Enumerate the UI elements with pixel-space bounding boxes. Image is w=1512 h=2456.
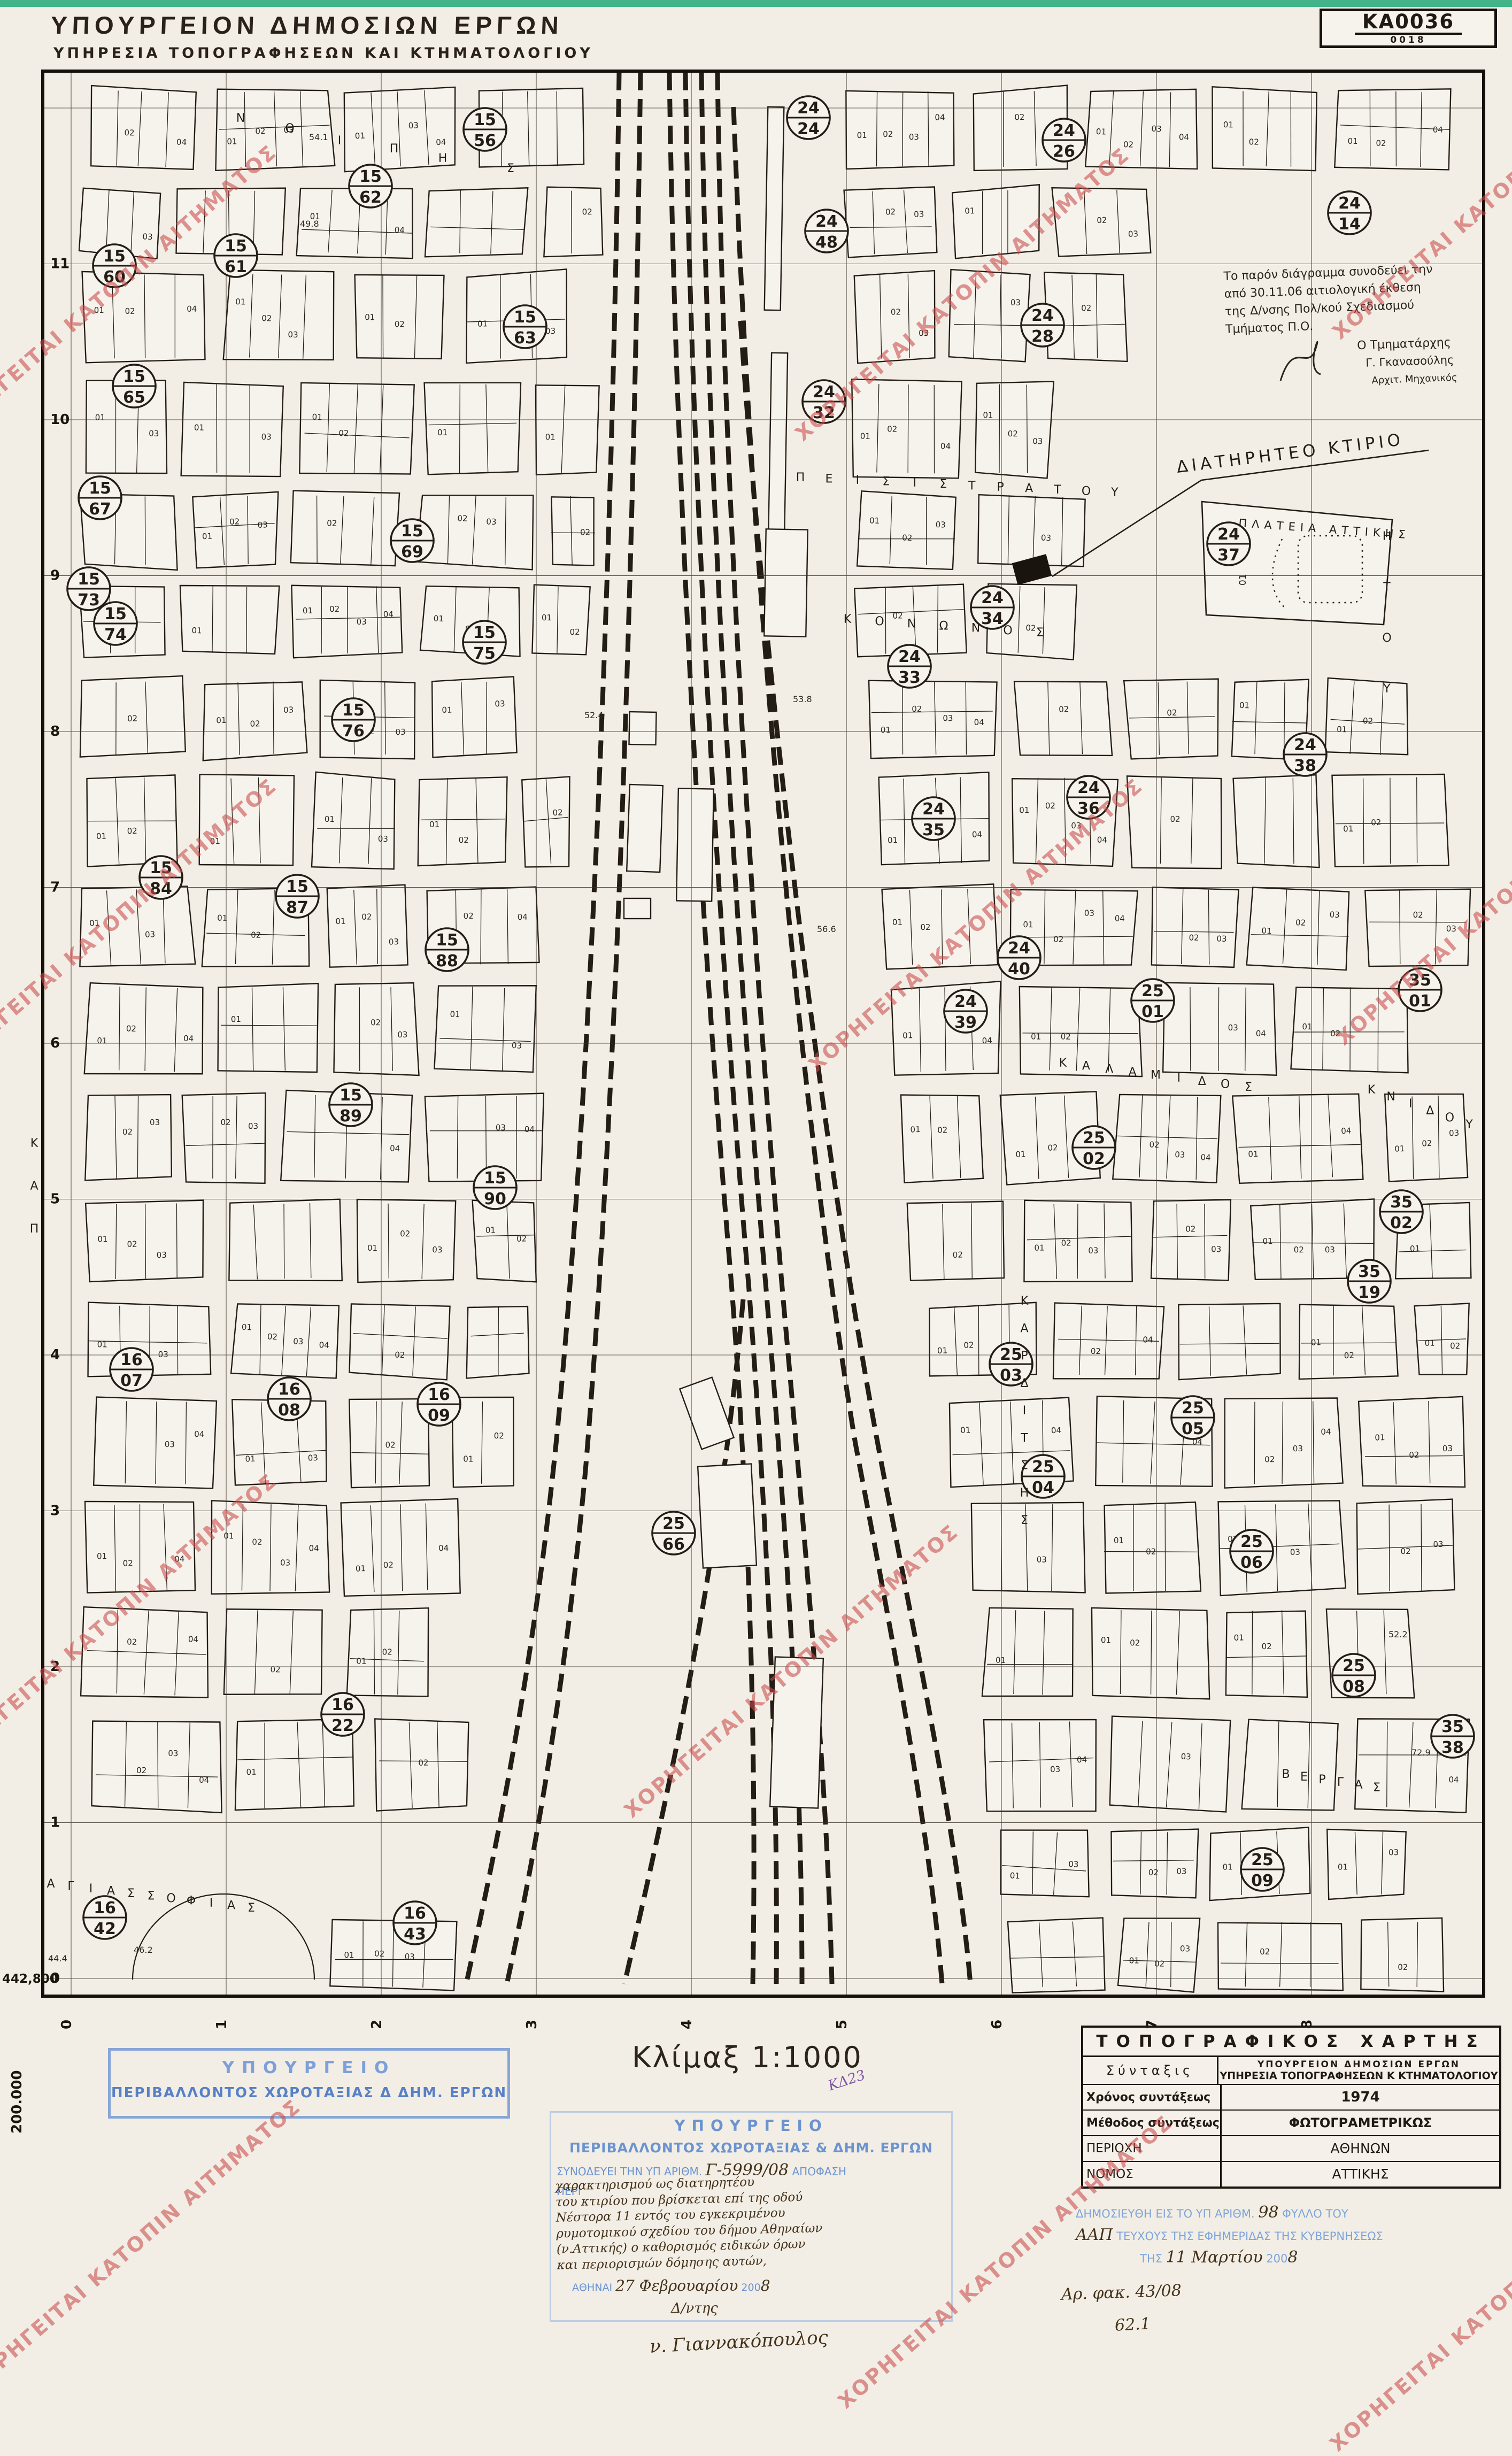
city-block: 010203: [975, 380, 1054, 478]
table-row-label: Χρόνος συντάξεως: [1083, 2085, 1222, 2109]
city-block: 0203: [1110, 1828, 1198, 1898]
svg-text:02: 02: [1059, 704, 1069, 714]
city-block: 02: [1218, 1922, 1344, 1990]
svg-text:03: 03: [283, 705, 294, 715]
svg-text:02: 02: [127, 1637, 137, 1647]
svg-text:16: 16: [278, 1380, 300, 1399]
svg-text:04: 04: [1077, 1755, 1087, 1765]
svg-text:04: 04: [1143, 1335, 1153, 1344]
svg-text:02: 02: [124, 128, 135, 138]
city-block: 0102: [299, 382, 414, 476]
svg-text:03: 03: [357, 617, 367, 627]
svg-text:Ι: Ι: [1177, 1072, 1181, 1085]
handwritten-issue-type: ΑΑΠ: [1076, 2226, 1113, 2244]
city-block: [1232, 774, 1321, 867]
svg-text:5: 5: [50, 1191, 60, 1207]
handwritten-gazette-number: 98: [1258, 2203, 1278, 2222]
block-number-circle: 2439: [944, 990, 987, 1033]
svg-text:4: 4: [679, 2020, 695, 2029]
svg-text:04: 04: [1115, 914, 1125, 923]
svg-text:88: 88: [436, 952, 458, 971]
svg-text:02: 02: [1149, 1140, 1160, 1150]
svg-text:89: 89: [340, 1107, 362, 1126]
svg-text:01: 01: [860, 431, 870, 441]
block-number-circle: 2448: [805, 210, 848, 252]
svg-text:04: 04: [187, 304, 197, 314]
svg-text:02: 02: [123, 1558, 133, 1568]
svg-text:04: 04: [972, 829, 983, 839]
svg-text:02: 02: [1154, 1959, 1164, 1968]
svg-text:03: 03: [150, 1118, 160, 1127]
svg-text:8: 8: [50, 723, 60, 740]
city-block: 01020304: [846, 91, 954, 169]
svg-text:02: 02: [1097, 215, 1107, 226]
city-block: 0304: [1163, 983, 1277, 1075]
svg-text:9: 9: [50, 568, 60, 584]
svg-text:01: 01: [242, 1322, 252, 1333]
svg-text:15: 15: [286, 877, 308, 896]
svg-text:15: 15: [342, 701, 365, 720]
svg-text:3: 3: [50, 1503, 60, 1519]
svg-text:62: 62: [359, 188, 382, 207]
block-number-circle: 3538: [1431, 1715, 1474, 1758]
svg-text:02: 02: [374, 1949, 384, 1958]
svg-text:02: 02: [1123, 140, 1134, 150]
block-number-circle: 2414: [1328, 191, 1371, 234]
svg-text:Ι: Ι: [1409, 1097, 1413, 1111]
city-block: 0102: [347, 1607, 429, 1697]
svg-text:Α: Α: [1354, 1779, 1362, 1792]
block-number-circle: 2502: [1073, 1126, 1115, 1169]
svg-text:02: 02: [1053, 934, 1063, 944]
svg-text:01: 01: [881, 725, 891, 735]
svg-text:02: 02: [125, 306, 135, 316]
svg-text:Τ: Τ: [968, 479, 976, 492]
svg-text:01: 01: [1337, 725, 1347, 735]
svg-text:02: 02: [1189, 933, 1199, 942]
city-block: 01: [178, 583, 279, 655]
svg-text:Ο: Ο: [1082, 484, 1091, 498]
block-number-circle: 1574: [94, 602, 137, 645]
turntable-arc: [133, 1894, 314, 1980]
block-number-circle: 1573: [67, 567, 110, 610]
block-number-circle: 2566: [652, 1512, 695, 1554]
city-block: 0103: [181, 382, 283, 476]
svg-text:Σ: Σ: [939, 478, 947, 491]
stamp-line: 200: [1266, 2252, 1287, 2265]
svg-text:02: 02: [229, 517, 240, 527]
svg-text:04: 04: [308, 1543, 319, 1553]
table-cell: ΦΩΤΟΓΡΑΜΕΤΡΙΚΩΣ: [1222, 2111, 1499, 2135]
svg-text:Ι: Ι: [338, 134, 342, 148]
svg-text:15: 15: [104, 605, 127, 623]
svg-text:03: 03: [1037, 1555, 1047, 1565]
svg-text:Α: Α: [1082, 1060, 1090, 1073]
svg-text:03: 03: [261, 432, 272, 442]
handwritten-director: Δ/ντης: [671, 2300, 718, 2316]
svg-text:03: 03: [1068, 1859, 1079, 1869]
svg-text:03: 03: [248, 1121, 258, 1131]
svg-text:15: 15: [473, 623, 496, 642]
svg-text:04: 04: [1448, 1775, 1459, 1784]
svg-text:Ρ: Ρ: [997, 481, 1004, 494]
city-block: 0103: [999, 1827, 1092, 1898]
svg-text:25: 25: [662, 1514, 685, 1533]
svg-text:11: 11: [50, 256, 70, 272]
svg-text:25: 25: [1032, 1458, 1054, 1476]
svg-text:Φ: Φ: [187, 1895, 196, 1908]
svg-text:24: 24: [797, 120, 820, 138]
svg-text:02: 02: [127, 826, 138, 836]
stamp-line: ΥΠΟΥΡΓΕΙΟ: [111, 2058, 507, 2077]
svg-text:5: 5: [834, 2020, 850, 2029]
city-block: 02: [1014, 679, 1112, 758]
svg-text:Σ: Σ: [882, 475, 890, 489]
city-block: 010203: [327, 885, 408, 967]
coordinate-label: 442,800: [2, 1972, 58, 1986]
svg-text:02: 02: [338, 428, 349, 438]
svg-text:02: 02: [1047, 1143, 1058, 1153]
spot-elevation: 54.1: [309, 132, 328, 142]
city-block: 02: [907, 1200, 1006, 1281]
svg-text:01: 01: [246, 1767, 256, 1777]
svg-text:Ο: Ο: [1445, 1111, 1454, 1125]
svg-text:02: 02: [887, 424, 897, 434]
handwritten-decision-subject: χαρακτηρισμού ως διατηρητέου του κτιρίου…: [555, 2172, 899, 2273]
svg-text:25: 25: [1083, 1129, 1105, 1148]
svg-text:04: 04: [1179, 132, 1190, 142]
svg-text:04: 04: [524, 1125, 535, 1134]
svg-text:61: 61: [225, 258, 247, 276]
svg-text:04: 04: [319, 1340, 329, 1350]
svg-text:01: 01: [1248, 1149, 1259, 1159]
svg-text:01: 01: [960, 1425, 971, 1435]
block-number-circle: 1609: [418, 1383, 460, 1426]
svg-text:01: 01: [429, 820, 439, 829]
svg-text:25: 25: [1240, 1533, 1263, 1551]
svg-text:22: 22: [331, 1716, 354, 1735]
svg-text:03: 03: [165, 1439, 175, 1449]
svg-text:Σ: Σ: [1373, 1781, 1380, 1795]
svg-text:24: 24: [1217, 525, 1240, 544]
coordinate-label: 200.000: [9, 2070, 25, 2134]
svg-text:05: 05: [1182, 1420, 1204, 1438]
svg-text:01: 01: [1015, 1149, 1026, 1159]
svg-text:01: 01: [450, 1010, 460, 1020]
svg-text:01: 01: [1023, 920, 1033, 929]
table-cell: ΥΠΟΥΡΓΕΙΟΝ ΔΗΜΟΣΙΩΝ ΕΡΓΩΝ: [1218, 2059, 1499, 2070]
spot-elevation: 56.6: [817, 924, 836, 934]
svg-text:02: 02: [250, 719, 260, 729]
svg-text:15: 15: [103, 247, 126, 266]
table-cell: ΑΤΤΙΚΗΣ: [1222, 2162, 1499, 2186]
svg-text:35: 35: [1390, 1193, 1413, 1212]
svg-text:02: 02: [1061, 1238, 1071, 1248]
svg-text:01: 01: [463, 1454, 473, 1464]
block-number-circle: 2433: [888, 645, 931, 688]
svg-text:04: 04: [1256, 1029, 1266, 1038]
svg-text:02: 02: [1091, 1346, 1101, 1356]
city-block: 01020304: [231, 1302, 339, 1379]
svg-text:01: 01: [1009, 1871, 1020, 1881]
svg-text:03: 03: [496, 1123, 506, 1133]
svg-text:01: 01: [365, 312, 375, 322]
svg-text:03: 03: [943, 713, 953, 723]
svg-text:02: 02: [127, 713, 138, 723]
svg-text:02: 02: [1083, 1150, 1105, 1168]
svg-text:Π: Π: [30, 1222, 39, 1236]
city-block: 0102: [1224, 1610, 1307, 1699]
stamp-line: ΦΥΛΛΟ ΤΟΥ: [1282, 2207, 1348, 2220]
city-block: 0203: [844, 187, 937, 257]
svg-text:02: 02: [883, 129, 893, 139]
svg-text:Α: Α: [227, 1899, 235, 1913]
svg-text:01: 01: [1343, 824, 1353, 834]
svg-text:66: 66: [662, 1535, 685, 1554]
svg-text:Ε: Ε: [826, 473, 833, 486]
svg-text:01: 01: [1141, 1003, 1164, 1021]
block-number-circle: 1576: [332, 698, 375, 741]
svg-text:24: 24: [1338, 194, 1361, 213]
city-block: 010204: [850, 379, 961, 479]
svg-text:02: 02: [920, 922, 930, 932]
city-block: 02: [522, 776, 573, 868]
handwritten-date: 27 Φεβρουαρίου: [615, 2277, 738, 2295]
svg-text:03: 03: [1325, 1245, 1335, 1254]
svg-text:04: 04: [1200, 1152, 1211, 1162]
svg-text:19: 19: [1358, 1283, 1380, 1302]
svg-text:03: 03: [1180, 1944, 1190, 1953]
svg-text:Ρ: Ρ: [1318, 1773, 1325, 1787]
svg-text:03: 03: [307, 1453, 318, 1463]
svg-text:Ο: Ο: [166, 1892, 175, 1905]
svg-text:38: 38: [1294, 757, 1316, 775]
svg-text:14: 14: [1338, 215, 1361, 234]
svg-text:74: 74: [104, 626, 127, 644]
svg-text:09: 09: [428, 1406, 450, 1425]
svg-text:03: 03: [288, 330, 298, 340]
city-block: [1008, 1918, 1105, 1992]
svg-text:01: 01: [1347, 136, 1357, 146]
svg-text:03: 03: [1228, 1023, 1238, 1033]
city-block: 01: [425, 383, 521, 475]
city-block: 010203: [192, 492, 281, 568]
handwritten-year: 8: [761, 2277, 770, 2295]
svg-text:01: 01: [965, 206, 975, 216]
svg-text:02: 02: [327, 518, 337, 528]
svg-text:02: 02: [385, 1440, 395, 1450]
svg-text:03: 03: [1290, 1547, 1301, 1557]
svg-text:03: 03: [389, 937, 399, 947]
city-block: 02: [291, 490, 399, 566]
block-number-circle: 1642: [83, 1896, 126, 1939]
svg-text:02: 02: [494, 1431, 504, 1441]
city-block: 02: [78, 676, 186, 757]
city-block: [1242, 1719, 1338, 1812]
svg-text:10: 10: [50, 412, 70, 428]
svg-text:Δ: Δ: [1198, 1075, 1206, 1088]
city-block: 0102: [417, 777, 508, 866]
city-block: 0203: [416, 492, 534, 569]
stamp-line: ΥΠΟΥΡΓΕΙΟ: [551, 2117, 951, 2135]
svg-text:01: 01: [485, 1225, 496, 1235]
svg-text:03: 03: [395, 727, 405, 737]
city-block: 010203: [1247, 887, 1351, 970]
svg-text:15: 15: [340, 1086, 362, 1105]
svg-text:67: 67: [89, 500, 111, 519]
svg-text:02: 02: [127, 1239, 137, 1249]
svg-text:Σ: Σ: [127, 1887, 135, 1900]
city-block: 0203: [84, 1095, 172, 1180]
table-cell: ΥΠΗΡΕΣΙΑ ΤΟΠΟΓΡΑΦΗΣΕΩΝ Κ ΚΤΗΜΑΤΟΛΟΓΙΟΥ: [1218, 2070, 1499, 2082]
stamp-line: ΔΗΜΟΣΙΕΥΘΗ ΕΙΣ ΤΟ ΥΠ ΑΡΙΘΜ.: [1076, 2207, 1255, 2220]
svg-text:02: 02: [891, 307, 901, 317]
svg-text:01: 01: [356, 1564, 366, 1574]
svg-text:Α: Α: [1020, 1322, 1028, 1335]
svg-text:2: 2: [369, 2020, 385, 2029]
svg-text:03: 03: [1000, 1366, 1022, 1385]
svg-text:6: 6: [50, 1035, 60, 1051]
svg-text:02: 02: [361, 912, 372, 922]
svg-text:01: 01: [217, 913, 227, 923]
svg-text:04: 04: [199, 1775, 209, 1785]
svg-text:1: 1: [214, 2020, 230, 2029]
city-block: 010204: [341, 1499, 461, 1598]
svg-text:Γ: Γ: [1337, 1776, 1344, 1789]
block-number-circle: 2440: [998, 936, 1040, 979]
city-block: 01: [534, 384, 599, 476]
block-number-circle: 1590: [474, 1166, 516, 1209]
svg-text:65: 65: [123, 388, 145, 407]
svg-text:01: 01: [354, 131, 365, 141]
block-number-circle: 1589: [329, 1083, 372, 1126]
svg-text:04: 04: [518, 912, 528, 922]
city-block: 010204: [1334, 87, 1451, 170]
svg-text:34: 34: [981, 610, 1004, 628]
city-block: 010203: [330, 1919, 457, 1990]
svg-text:01: 01: [910, 1125, 921, 1135]
svg-text:Ι: Ι: [913, 476, 917, 490]
svg-text:04: 04: [436, 137, 446, 148]
svg-text:02: 02: [1260, 1947, 1270, 1957]
city-block: 01: [982, 1607, 1075, 1698]
city-block: 0204: [89, 86, 196, 170]
svg-text:02: 02: [329, 604, 340, 614]
svg-text:04: 04: [1097, 835, 1107, 845]
svg-text:01: 01: [1375, 1433, 1385, 1443]
scanned-topographic-sheet: ΥΠΟΥΡΓΕΙΟΝ ΔΗΜΟΣΙΩΝ ΕΡΓΩΝ ΥΠΗΡΕΣΙΑ ΤΟΠΟΓ…: [0, 0, 1512, 2362]
city-block: 01: [217, 983, 319, 1073]
handwritten-gazette-date: 11 Μαρτίου: [1166, 2248, 1263, 2267]
svg-text:02: 02: [255, 126, 265, 136]
svg-text:03: 03: [936, 520, 946, 529]
svg-text:03: 03: [1032, 436, 1043, 446]
svg-text:02: 02: [267, 1332, 278, 1342]
svg-text:04: 04: [974, 718, 984, 727]
city-block: 010203: [1118, 1917, 1200, 1992]
city-block: 01020304: [291, 584, 402, 658]
svg-text:03: 03: [1293, 1444, 1303, 1453]
svg-text:Α: Α: [30, 1180, 38, 1193]
svg-text:04: 04: [1321, 1427, 1331, 1437]
svg-text:02: 02: [902, 533, 913, 543]
svg-text:03: 03: [1181, 1752, 1191, 1762]
svg-text:01: 01: [344, 1950, 354, 1960]
svg-text:01: 01: [983, 410, 993, 420]
stamp-line: ΤΕΥΧΟΥΣ ΤΗΣ ΕΦΗΜΕΡΙΔΑΣ ΤΗΣ ΚΥΒΕΡΝΗΣΕΩΣ: [1116, 2230, 1383, 2243]
svg-text:03: 03: [1010, 298, 1021, 307]
svg-text:48: 48: [815, 233, 838, 252]
svg-text:01: 01: [202, 532, 213, 542]
block-number-circle: 1567: [79, 476, 121, 519]
svg-text:24: 24: [898, 648, 921, 666]
block-number-circle: 3502: [1380, 1190, 1423, 1233]
svg-text:02: 02: [1400, 1546, 1410, 1556]
svg-text:02: 02: [382, 1647, 392, 1657]
block-number-circle: 1587: [276, 875, 319, 918]
city-block: 0103: [312, 772, 396, 869]
svg-text:16: 16: [94, 1899, 116, 1918]
svg-text:02: 02: [136, 1766, 146, 1775]
spot-elevation: 52.2: [1388, 1629, 1408, 1639]
svg-text:24: 24: [797, 99, 820, 118]
svg-text:Λ: Λ: [1105, 1063, 1113, 1076]
svg-text:Ο: Ο: [1221, 1077, 1230, 1091]
svg-text:Η: Η: [438, 152, 448, 165]
svg-text:25: 25: [1141, 982, 1164, 1000]
svg-text:Ω: Ω: [939, 620, 948, 633]
svg-text:Β: Β: [1282, 1768, 1290, 1781]
svg-text:01: 01: [96, 831, 107, 841]
block-number-circle: 2509: [1241, 1848, 1284, 1891]
svg-text:0: 0: [59, 2020, 75, 2029]
city-block: 02: [224, 1608, 323, 1696]
svg-text:04: 04: [183, 1034, 194, 1044]
svg-text:02: 02: [1130, 1638, 1140, 1647]
svg-text:24: 24: [1031, 306, 1054, 325]
svg-text:01: 01: [1129, 1955, 1139, 1965]
svg-text:6: 6: [989, 2020, 1005, 2029]
spot-elevation: 72.9: [1411, 1747, 1431, 1758]
city-block: 03: [971, 1503, 1085, 1593]
block-number-circle: 1643: [394, 1901, 436, 1944]
city-block: 0102: [1018, 986, 1144, 1076]
svg-text:07: 07: [120, 1372, 143, 1390]
svg-text:02: 02: [459, 835, 469, 845]
svg-text:Σ: Σ: [1021, 1514, 1028, 1527]
svg-text:01: 01: [227, 136, 237, 146]
svg-text:01: 01: [1262, 1236, 1272, 1246]
svg-text:39: 39: [954, 1013, 977, 1032]
svg-text:Ν: Ν: [236, 112, 245, 125]
city-block: 0103: [431, 676, 516, 757]
svg-text:02: 02: [1344, 1351, 1355, 1360]
svg-text:Κ: Κ: [844, 613, 852, 626]
svg-text:01: 01: [97, 1339, 107, 1349]
svg-text:24: 24: [922, 800, 945, 819]
svg-text:25: 25: [1000, 1345, 1022, 1364]
svg-text:01: 01: [1261, 926, 1272, 936]
svg-text:02: 02: [963, 1340, 974, 1350]
city-block: 0102: [473, 1199, 537, 1284]
svg-text:01: 01: [245, 1454, 256, 1464]
gazette-stamp: ΔΗΜΟΣΙΕΥΘΗ ΕΙΣ ΤΟ ΥΠ ΑΡΙΘΜ. 98 ΦΥΛΛΟ ΤΟΥ…: [1076, 2202, 1503, 2269]
city-block: 0102: [1325, 678, 1410, 756]
svg-text:Ν: Ν: [1386, 1090, 1395, 1104]
svg-text:01: 01: [892, 918, 902, 927]
svg-text:24: 24: [981, 589, 1004, 607]
svg-text:02: 02: [552, 807, 563, 818]
